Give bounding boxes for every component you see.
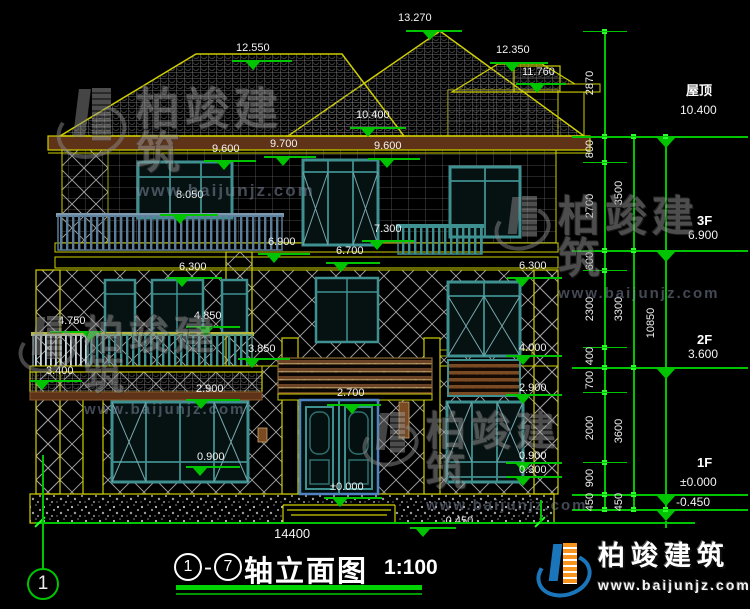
title-underline-thin bbox=[176, 593, 422, 595]
dimension-value: 10850 bbox=[644, 303, 658, 343]
watermark: 柏竣建筑www.baijunjz.com bbox=[56, 88, 315, 201]
elevation-marker-value: 0.900 bbox=[197, 452, 225, 463]
elevation-marker-value: 7.300 bbox=[374, 224, 402, 235]
elevation-marker-line bbox=[160, 214, 218, 216]
floor-level-value: -0.450 bbox=[676, 496, 710, 508]
brand-logo-icon bbox=[536, 543, 590, 599]
elevation-marker-line bbox=[490, 62, 548, 64]
elevation-marker-value: 6.300 bbox=[179, 262, 207, 273]
baseline-extension-line bbox=[540, 500, 542, 523]
dimension-line bbox=[665, 136, 667, 509]
floor-level-name: 1F bbox=[697, 456, 712, 469]
brand-logo: 柏竣建筑 www.baijunjz.com bbox=[536, 543, 750, 599]
watermark-url: www.baijunjz.com bbox=[136, 181, 315, 201]
elevation-marker-value: 12.550 bbox=[236, 43, 270, 54]
elevation-marker-triangle bbox=[423, 32, 437, 40]
watermark-text: 柏竣建筑www.baijunjz.com bbox=[136, 88, 315, 201]
axis-to-bubble: 7 bbox=[214, 553, 242, 581]
overall-width-dimension: 14400 bbox=[274, 526, 310, 541]
watermark-name: 柏竣建筑 bbox=[426, 412, 587, 492]
elevation-marker-line bbox=[368, 158, 420, 160]
elevation-marker-value: 12.350 bbox=[496, 45, 530, 56]
drawing-title: 1 - 7 轴立面图 1:100 bbox=[174, 548, 438, 590]
elevation-marker-triangle bbox=[173, 216, 187, 224]
watermark-text: 柏竣建筑www.baijunjz.com bbox=[558, 196, 719, 302]
axis-from-bubble: 1 bbox=[174, 553, 202, 581]
watermark: 柏竣建筑www.baijunjz.com bbox=[494, 196, 719, 302]
elevation-marker-triangle bbox=[530, 85, 544, 93]
title-underline-thick bbox=[176, 585, 422, 590]
elevation-marker-triangle bbox=[516, 396, 530, 404]
elevation-marker-value: 6.700 bbox=[336, 246, 364, 257]
elevation-marker-value: 9.600 bbox=[374, 141, 402, 152]
cad-elevation-screenshot: { "page": {"background": "#000000"}, "co… bbox=[0, 0, 750, 609]
elevation-marker-value: 13.270 bbox=[398, 13, 432, 24]
louver-shutter bbox=[448, 360, 520, 396]
elevation-marker-triangle bbox=[246, 62, 260, 70]
elevation-marker-value: 3.850 bbox=[248, 344, 276, 355]
floor-level-value: 10.400 bbox=[680, 104, 717, 116]
watermark-logo-swoosh bbox=[357, 416, 424, 473]
elevation-marker-triangle bbox=[334, 264, 348, 272]
watermark-url: www.baijunjz.com bbox=[558, 285, 719, 302]
dimension-tick-line bbox=[612, 367, 656, 368]
elevation-marker-triangle bbox=[361, 129, 375, 137]
dimension-tick-line bbox=[644, 136, 688, 137]
watermark-name: 柏竣建筑 bbox=[136, 88, 315, 176]
floor-level-value: 3.600 bbox=[688, 348, 718, 360]
floor-level-value: ±0.000 bbox=[680, 476, 717, 488]
axis-bubble: 1 bbox=[27, 568, 59, 600]
brand-name: 柏竣建筑 bbox=[598, 541, 730, 571]
elevation-marker-triangle bbox=[345, 406, 359, 414]
brand-url: www.baijunjz.com bbox=[598, 577, 750, 593]
elevation-marker-value: 10.400 bbox=[356, 110, 390, 121]
elevation-marker-triangle bbox=[267, 255, 281, 263]
axis-grid-line bbox=[42, 455, 44, 569]
elevation-marker-triangle bbox=[505, 64, 519, 72]
elevation-marker-value: 11.760 bbox=[522, 67, 555, 78]
elevation-marker-triangle bbox=[175, 279, 189, 287]
axis-range-dash: - bbox=[204, 554, 212, 582]
watermark-name: 柏竣建筑 bbox=[558, 196, 719, 280]
elevation-marker-line bbox=[506, 355, 562, 357]
elevation-marker-line bbox=[350, 127, 406, 129]
dimension-value: 2870 bbox=[583, 63, 597, 103]
watermark: 柏竣建筑www.baijunjz.com bbox=[362, 412, 587, 514]
elevation-marker-value: 4.000 bbox=[519, 343, 547, 354]
elevation-marker-line bbox=[258, 253, 310, 255]
dimension-tick-line bbox=[644, 509, 688, 510]
dimension-value: 3600 bbox=[612, 411, 626, 451]
dimension-tick-line bbox=[583, 31, 627, 32]
floor-level-name: 屋顶 bbox=[686, 84, 712, 97]
elevation-marker-line bbox=[506, 394, 562, 396]
watermark-logo-swoosh bbox=[50, 96, 133, 166]
elevation-marker-line bbox=[232, 60, 292, 62]
watermark-logo-swoosh bbox=[13, 320, 82, 379]
floor-level-name: 2F bbox=[697, 333, 712, 346]
watermark-text: 柏竣建筑www.baijunjz.com bbox=[426, 412, 587, 514]
elevation-marker-triangle bbox=[370, 242, 384, 250]
dimension-line bbox=[633, 136, 635, 509]
watermark: 柏竣建筑www.baijunjz.com bbox=[18, 316, 245, 418]
floor-level-triangle bbox=[657, 511, 675, 521]
dimension-value: 450 bbox=[612, 482, 626, 522]
watermark-logo-icon bbox=[362, 412, 418, 468]
dimension-value: 800 bbox=[583, 129, 597, 169]
watermark-url: www.baijunjz.com bbox=[426, 497, 587, 514]
watermark-logo-icon bbox=[18, 316, 76, 374]
elevation-marker-triangle bbox=[416, 529, 430, 537]
elevation-marker-triangle bbox=[193, 468, 207, 476]
dimension-value: 700 bbox=[583, 360, 597, 400]
elevation-marker-triangle bbox=[333, 499, 347, 507]
watermark-text: 柏竣建筑www.baijunjz.com bbox=[84, 316, 245, 418]
watermark-url: www.baijunjz.com bbox=[84, 401, 245, 418]
baseline-dimension-line bbox=[35, 522, 695, 524]
watermark-logo-icon bbox=[56, 88, 128, 160]
drawing-title-text: 轴立面图 bbox=[244, 548, 368, 590]
elevation-marker-value: 2.900 bbox=[519, 383, 547, 394]
elevation-marker-value: 6.900 bbox=[268, 237, 296, 248]
elevation-marker-value: ±0.000 bbox=[330, 482, 364, 493]
watermark-name: 柏竣建筑 bbox=[84, 316, 245, 396]
elevation-marker-triangle bbox=[245, 360, 259, 368]
watermark-logo-swoosh bbox=[489, 200, 556, 257]
elevation-marker-triangle bbox=[516, 357, 530, 365]
watermark-logo-icon bbox=[494, 196, 550, 252]
elevation-marker-value: 2.700 bbox=[337, 388, 365, 399]
elevation-marker-triangle bbox=[380, 160, 394, 168]
drawing-scale: 1:100 bbox=[384, 556, 438, 580]
